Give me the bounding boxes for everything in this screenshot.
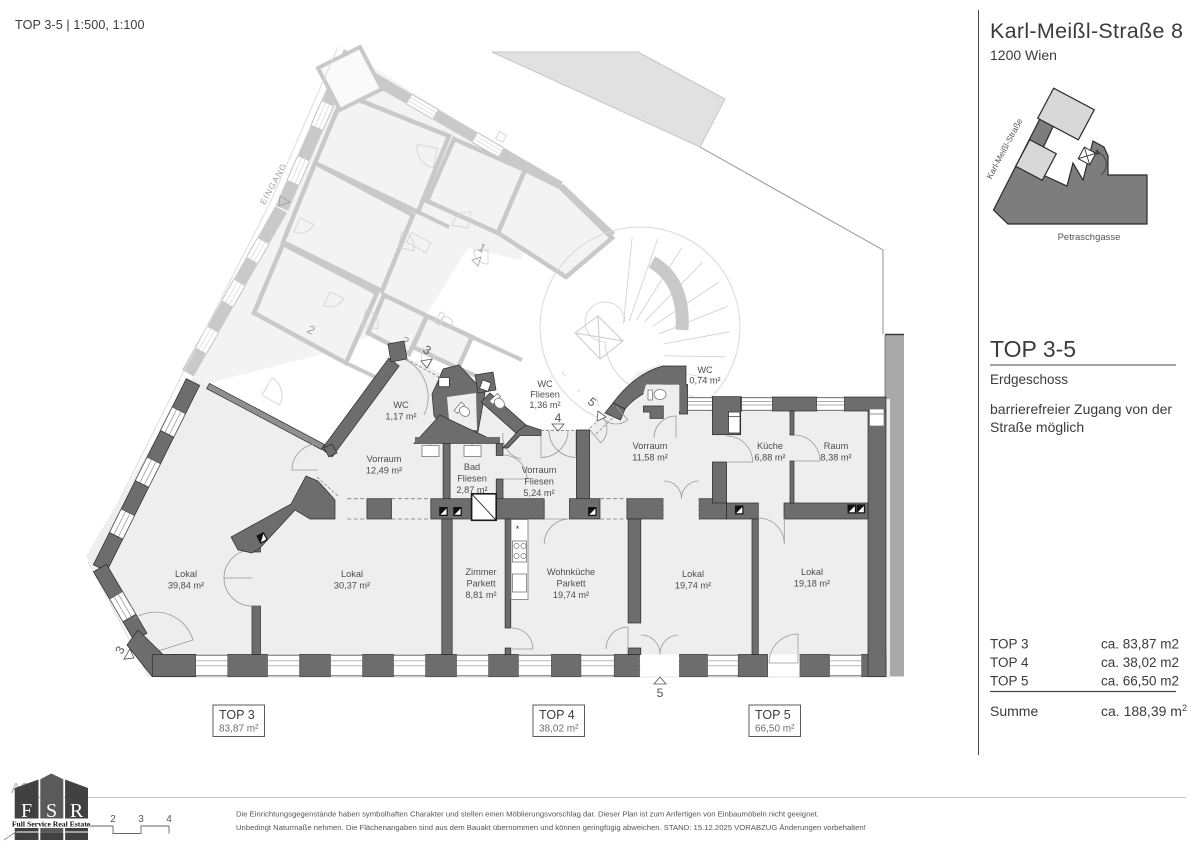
svg-text:2,87 m²: 2,87 m²: [456, 485, 487, 495]
svg-text:Fliesen: Fliesen: [524, 477, 554, 487]
svg-text:1,36 m²: 1,36 m²: [529, 400, 560, 410]
svg-text:TOP 3-5: TOP 3-5: [990, 336, 1076, 362]
svg-text:Lokal: Lokal: [341, 569, 363, 579]
svg-text:Raum: Raum: [824, 441, 849, 451]
svg-text:Petraschgasse: Petraschgasse: [1058, 232, 1121, 243]
svg-text:Fliesen: Fliesen: [457, 474, 487, 484]
svg-text:Zimmer: Zimmer: [465, 567, 496, 577]
svg-text:Parkett: Parkett: [556, 579, 586, 589]
svg-text:0,74 m²: 0,74 m²: [689, 376, 720, 386]
svg-text:39,84 m²: 39,84 m²: [168, 581, 204, 591]
svg-text:TOP 4: TOP 4: [539, 708, 575, 722]
svg-text:Karl-Meißl-Straße 8: Karl-Meißl-Straße 8: [990, 19, 1183, 43]
svg-text:8,81 m²: 8,81 m²: [465, 590, 496, 600]
svg-text:19,18 m²: 19,18 m²: [794, 579, 830, 589]
svg-text:83,87 m²: 83,87 m²: [219, 724, 259, 735]
svg-text:Küche: Küche: [757, 441, 783, 451]
svg-text:TOP 3: TOP 3: [219, 708, 255, 722]
svg-text:Full Service Real Estate: Full Service Real Estate: [12, 820, 91, 829]
svg-text:Lokal: Lokal: [801, 567, 823, 577]
svg-text:19,74 m²: 19,74 m²: [675, 581, 711, 591]
svg-text:Wohnküche: Wohnküche: [547, 567, 595, 577]
svg-text:Lokal: Lokal: [175, 569, 197, 579]
svg-text:4: 4: [555, 411, 562, 425]
svg-text:TOP 4: TOP 4: [990, 655, 1029, 670]
svg-text:5: 5: [657, 686, 664, 700]
svg-text:TOP 5: TOP 5: [990, 674, 1029, 689]
svg-text:Vorraum: Vorraum: [522, 465, 557, 475]
svg-text:TOP 5: TOP 5: [755, 708, 791, 722]
svg-text:5,24 m²: 5,24 m²: [523, 488, 554, 498]
svg-text:38,02 m²: 38,02 m²: [539, 724, 579, 735]
svg-text:Die Einrichtungsgegenstände ha: Die Einrichtungsgegenstände haben symbol…: [236, 810, 819, 819]
svg-text:ca. 188,39 m2: ca. 188,39 m2: [1101, 703, 1187, 719]
svg-text:2: 2: [110, 814, 116, 825]
svg-text:ca. 66,50 m2: ca. 66,50 m2: [1101, 674, 1179, 689]
svg-text:Unbedingt Naturmaße nehmen. Di: Unbedingt Naturmaße nehmen. Die Flächena…: [236, 823, 866, 832]
svg-text:WC: WC: [393, 400, 409, 410]
svg-text:1,17 m²: 1,17 m²: [385, 412, 416, 422]
svg-text:8,38 m²: 8,38 m²: [820, 453, 851, 463]
svg-text:TOP 3: TOP 3: [990, 637, 1029, 652]
svg-text:ca. 38,02 m2: ca. 38,02 m2: [1101, 655, 1179, 670]
svg-text:Straße möglich: Straße möglich: [990, 419, 1084, 435]
svg-text:Bad: Bad: [464, 462, 480, 472]
svg-text:Erdgeschoss: Erdgeschoss: [990, 372, 1068, 387]
svg-text:1200 Wien: 1200 Wien: [990, 47, 1057, 63]
svg-text:WC: WC: [697, 365, 713, 375]
svg-text:Parkett: Parkett: [466, 579, 496, 589]
svg-text:barrierefreier Zugang von der: barrierefreier Zugang von der: [990, 401, 1172, 417]
svg-text:ca. 83,87 m2: ca. 83,87 m2: [1101, 637, 1179, 652]
svg-text:12,49 m²: 12,49 m²: [366, 466, 402, 476]
svg-text:Vorraum: Vorraum: [633, 441, 668, 451]
svg-text:11,58 m²: 11,58 m²: [632, 453, 668, 463]
svg-text:Fliesen: Fliesen: [530, 390, 560, 400]
svg-text:19,74 m²: 19,74 m²: [553, 590, 589, 600]
svg-text:3: 3: [138, 814, 144, 825]
svg-text:66,50 m²: 66,50 m²: [755, 724, 795, 735]
svg-text:Summe: Summe: [990, 703, 1038, 719]
svg-text:30,37 m²: 30,37 m²: [334, 581, 370, 591]
svg-text:Lokal: Lokal: [682, 569, 704, 579]
svg-text:WC: WC: [537, 379, 553, 389]
svg-text:*: *: [516, 524, 520, 534]
svg-text:4: 4: [166, 814, 172, 825]
svg-text:Vorraum: Vorraum: [367, 454, 402, 464]
svg-text:6,88 m²: 6,88 m²: [754, 453, 785, 463]
svg-text:TOP 3-5 | 1:500, 1:100: TOP 3-5 | 1:500, 1:100: [15, 18, 145, 32]
